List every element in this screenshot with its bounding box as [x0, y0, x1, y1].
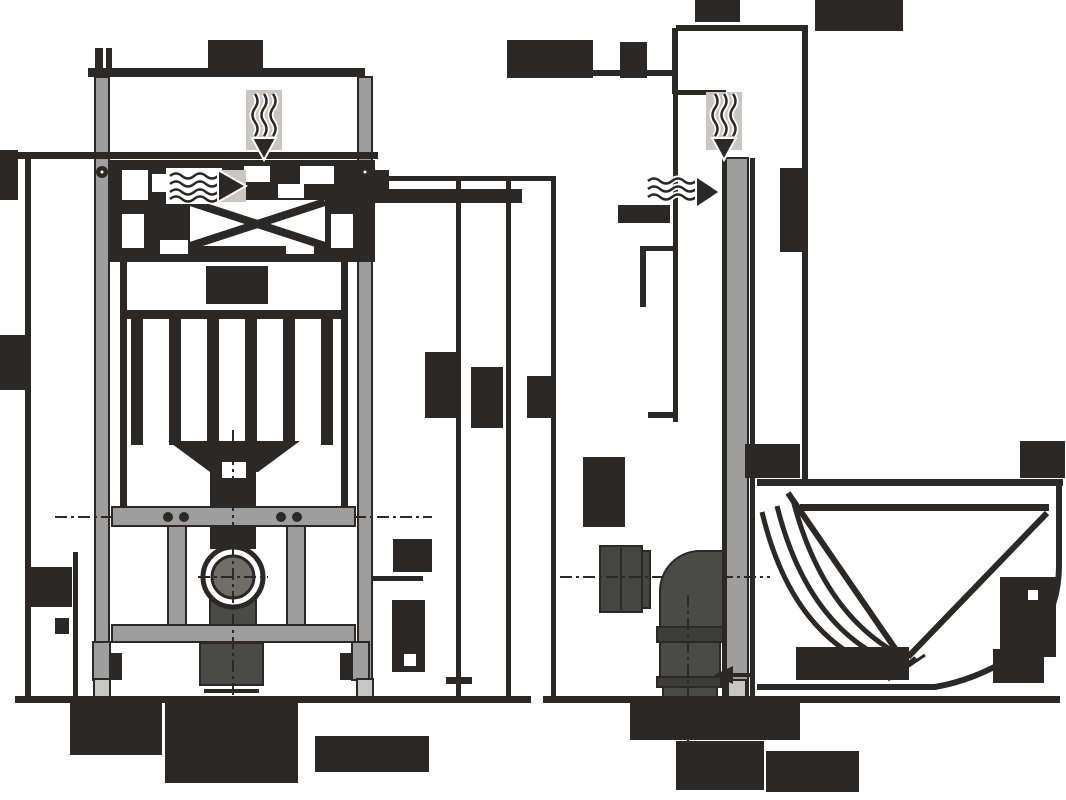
niche-line-2 — [506, 180, 511, 696]
odour-extraction-arrow-front — [246, 90, 282, 160]
redacted-label-front-rail-dim-upper — [393, 539, 432, 572]
odour-extraction-arrow-side — [706, 92, 742, 160]
redacted-label-side-range-label-2 — [620, 42, 647, 78]
foot-left — [93, 642, 110, 680]
redacted-label-hole — [404, 654, 416, 666]
redacted-label-front-floor-label-center — [165, 702, 298, 783]
niche-line-1 — [456, 180, 461, 696]
redacted-label-front-height-dim-2 — [471, 367, 503, 428]
water-inlet-arrow-front — [166, 168, 246, 204]
redacted-label-front-center-label — [206, 266, 268, 304]
wall-surface-line — [750, 158, 755, 697]
redacted-label-front-left-upper-dim — [0, 150, 18, 200]
floor-line-left — [15, 696, 531, 703]
wall-lintel-line — [15, 152, 378, 159]
redacted-label-front-right-top-row — [375, 189, 522, 203]
floor-drain-box — [200, 643, 263, 685]
technical-drawing-canvas — [0, 0, 1066, 800]
redacted-label-front-left-mid-dim — [0, 335, 25, 390]
bowl-rim-inner — [800, 504, 1049, 511]
redacted-label-hole — [1028, 590, 1038, 600]
redacted-dimension-labels — [0, 0, 1065, 792]
wall-anchor-line — [389, 176, 401, 181]
foot-pad-left — [94, 679, 110, 697]
foot-block-left — [109, 653, 122, 680]
redacted-label-side-slope-label-left — [796, 647, 909, 680]
redacted-label-side-floor-label-2 — [676, 741, 764, 790]
redacted-label-front-height-dim-1 — [425, 352, 456, 418]
redacted-label-side-water-label — [618, 205, 670, 223]
redacted-label-side-floor-label-3 — [766, 751, 859, 792]
foot-block-right — [340, 653, 353, 680]
top-dim-line — [676, 25, 808, 31]
redacted-label-front-top-width-dim — [208, 40, 263, 72]
side-rail — [726, 158, 748, 697]
hanger-bracket-left — [168, 526, 186, 628]
redacted-label-side-bowl-right-label — [1020, 441, 1065, 478]
redacted-label-side-slope-label-right — [993, 649, 1044, 683]
redacted-label-side-bowl-left-label — [745, 444, 800, 478]
redacted-label-side-range-label — [507, 40, 593, 78]
redacted-label-side-bracket-label — [583, 457, 625, 527]
side-section-view — [543, 25, 1063, 745]
top-dim-tick-left — [672, 28, 678, 94]
redacted-label-front-floor-label-left — [70, 702, 162, 755]
redacted-label-front-height-dim-3 — [527, 376, 555, 418]
bowl-rim-top — [757, 479, 1063, 486]
foot-right — [352, 642, 369, 680]
hanger-bracket-right — [287, 526, 305, 628]
left-extension-line — [73, 552, 78, 697]
redacted-label-front-floor-label-right — [315, 736, 429, 772]
redacted-label-side-top-right-dim — [815, 0, 903, 31]
left-wall-line — [25, 159, 31, 697]
cistern-profile-line — [673, 90, 678, 422]
redacted-label-side-right-vertical-dim — [780, 168, 807, 252]
right-dim-line — [802, 28, 808, 480]
redacted-label-front-left-lower-dim — [30, 567, 72, 607]
hanger-bolt-b — [106, 48, 112, 70]
water-inlet-arrow-side — [648, 176, 720, 208]
redacted-label-side-bowl-inner-label — [1000, 577, 1056, 657]
rail-dim-leader — [373, 576, 423, 581]
foot-pad-right — [357, 679, 373, 697]
niche-line-3 — [551, 176, 556, 696]
redacted-label-side-top-dim — [695, 0, 740, 22]
redacted-label-front-left-small-tick — [55, 618, 69, 634]
hanger-bolt-a — [95, 48, 103, 70]
installation-frame-drawing — [0, 0, 1066, 800]
redacted-label-side-floor-label-1 — [630, 702, 800, 740]
floor-line-right — [543, 696, 1060, 703]
dim-tick — [446, 677, 472, 684]
